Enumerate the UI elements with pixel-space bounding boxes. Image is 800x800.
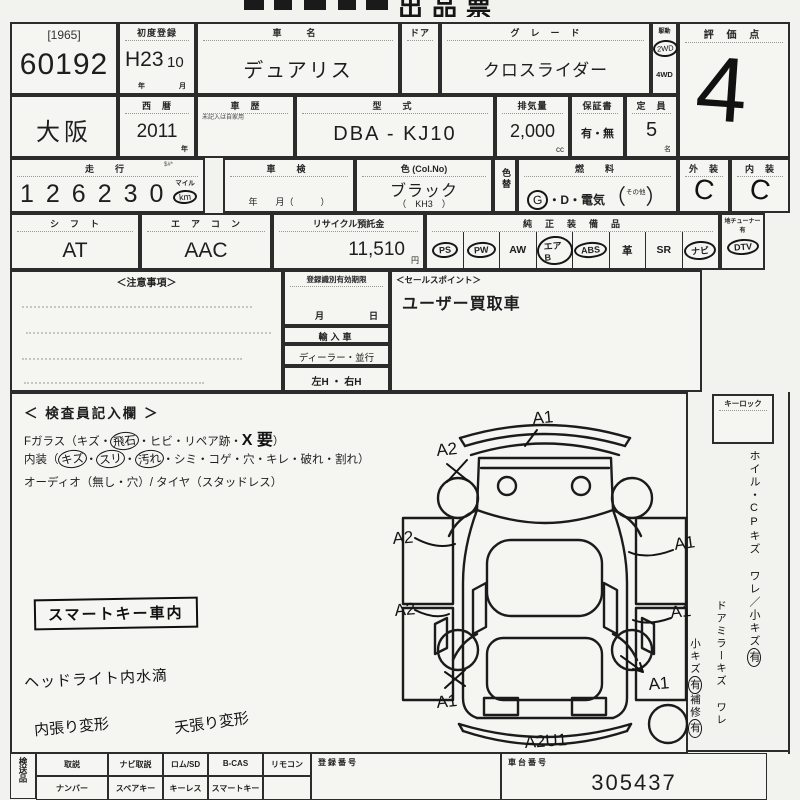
equipment-item-sr: SR xyxy=(645,232,682,268)
equipment-pw: PW xyxy=(466,241,496,259)
shift-box: シ フ ト AT xyxy=(10,213,140,270)
sales-point-label: ＜セールスポイント＞ xyxy=(396,274,481,286)
chassis-number-label: 車台番号 xyxy=(508,757,548,768)
expiry-month-label: 月 xyxy=(315,309,324,322)
first-registration-label: 初度登録 xyxy=(125,24,189,41)
smart-key-label: スマートキー xyxy=(209,783,262,794)
grade-box: グ レ ー ド クロスライダー xyxy=(440,22,651,95)
caution-notes-box: ＜注意事項＞ xyxy=(10,270,283,392)
grade-value: クロスライダー xyxy=(442,56,649,81)
glass-post: ） xyxy=(273,436,285,448)
registration-expiry-label: 登録識別有効期限 xyxy=(290,272,383,287)
mileage-value: 126230 xyxy=(20,180,175,209)
model-value: DBA - KJ10 xyxy=(297,123,493,146)
damage-label-rear: A2U1 xyxy=(524,730,568,752)
remote-label: リモコン xyxy=(264,759,310,770)
lot-year-tag: [1965] xyxy=(12,28,116,42)
equipment-item-pw: PW xyxy=(463,232,500,268)
registration-expiry-box: 登録識別有効期限 月 日 xyxy=(283,270,390,326)
headlight-moisture-note: ヘッドライト内水滴 xyxy=(24,664,169,693)
color-change-box: 色替 xyxy=(493,158,517,213)
west-year-box: 西 暦 2011 年 xyxy=(118,95,196,158)
equipment-label: 純 正 装 備 品 xyxy=(432,215,713,232)
interior-circled-dirt: 汚れ xyxy=(134,449,165,470)
west-year-value: 2011 xyxy=(120,121,194,143)
equipment-navi: ナビ xyxy=(684,239,717,260)
keyless-cell: キーレス xyxy=(163,776,208,800)
caution-label: ＜注意事項＞ xyxy=(12,274,281,289)
shaken-units: 年 月（ ） xyxy=(225,195,353,208)
faded-print-line xyxy=(26,332,271,334)
equipment-item-abs: ABS xyxy=(572,232,609,268)
interior-trim-deform-note: 内張り変形 xyxy=(33,713,110,740)
glass-circled-stone-chip: 飛石 xyxy=(109,431,140,452)
equipment-abs: ABS xyxy=(574,241,608,259)
first-registration-month: 10 xyxy=(167,54,184,71)
fuel-box: 燃 料 G・D・電気（その他） xyxy=(517,158,678,213)
capacity-unit: 名 xyxy=(664,144,671,154)
car-name-label: 車 名 xyxy=(203,24,393,41)
drive-label: 駆動 xyxy=(653,24,676,35)
drive-option-2wd: 2WD xyxy=(652,39,678,58)
model-label: 型 式 xyxy=(302,97,488,114)
exterior-value-handwritten: C xyxy=(678,171,730,209)
history-box: 車 歴 未記入は自家用 xyxy=(196,95,295,158)
damage-label-front-left: A2 xyxy=(435,439,458,460)
score-value-handwritten: 4 xyxy=(692,36,750,144)
mirror-memo-vertical: ドアミラーキズ ワレ xyxy=(714,600,729,750)
chassis-number-value: 305437 xyxy=(502,770,766,796)
fuel-options: ・D・電気 xyxy=(548,193,605,207)
interior-grade-box: 内 装 C xyxy=(730,158,790,213)
wheel-memo-circled-yes: 有 xyxy=(747,648,761,667)
right-strip-bottom-border xyxy=(688,750,790,752)
equipment-item-navi: ナビ xyxy=(682,232,719,268)
shift-value: AT xyxy=(12,239,138,263)
equipment-item-aw: AW xyxy=(499,232,536,268)
region-box: 大阪 xyxy=(10,95,118,158)
faded-print-line xyxy=(24,382,204,384)
damage-label-front: A1 xyxy=(532,407,554,428)
interior-circled-scuff: スリ xyxy=(95,449,126,470)
spare-key-label: スペアキー xyxy=(109,783,162,794)
damage-label-left-lower: A2 xyxy=(394,599,416,620)
tuner-dtv: DTV xyxy=(726,238,759,256)
capacity-label: 定 員 xyxy=(632,97,671,114)
grade-label: グ レ ー ド xyxy=(447,24,644,41)
first-registration-era: H23 xyxy=(125,48,164,72)
accessories-vertical-label-box: 検送品 xyxy=(10,753,36,799)
history-note: 未記入は自家用 xyxy=(202,112,244,121)
inspector-section: ＜ 検査員記入欄 ＞ Fガラス（キズ・飛石・ヒビ・リペア跡・X 要） 内装（キズ… xyxy=(10,392,688,754)
repair-text: 補修 xyxy=(689,694,701,719)
accessories-vertical-label: 検送品 xyxy=(17,757,29,783)
fuel-other-label: その他 xyxy=(626,189,646,196)
keylock-box: キーロック xyxy=(712,394,774,444)
equipment-item-ps: PS xyxy=(427,232,463,268)
interior-condition-line: 内装（キズ・スリ・汚れ・シミ・コゲ・穴・キレ・破れ・割れ） xyxy=(24,450,370,468)
glass-mid: ・ヒビ・リペア跡・ xyxy=(138,436,242,448)
chassis-number-box: 車台番号 305437 xyxy=(501,753,767,800)
faded-print-line xyxy=(22,358,242,360)
manual-cell: 取説 xyxy=(36,753,108,776)
equipment-box: 純 正 装 備 品 PS PW AW エアB ABS 革 SR ナビ xyxy=(425,213,720,270)
shaken-label: 車 検 xyxy=(230,160,348,177)
wheel-memo-vertical: ホイル・CPキズ ワレ／小キズ有 xyxy=(746,450,762,755)
fuel-label: 燃 料 xyxy=(524,160,671,177)
drive-option-4wd: 4WD xyxy=(653,70,676,79)
score-box: 評 価 点 4 xyxy=(678,22,790,158)
import-car-box: 輸入車 xyxy=(283,326,390,344)
car-damage-diagram: A1 A2 A2 A2 A1 A1 A1 A1 A2U1 xyxy=(387,398,702,755)
plate-cell: ナンバー xyxy=(36,776,108,800)
warranty-value: 有・無 xyxy=(572,125,623,141)
displacement-value: 2,000 xyxy=(497,121,568,142)
model-code-box: 型 式 DBA - KJ10 xyxy=(295,95,495,158)
auction-sheet: { "title": "出品票", "lot": {"year_tag": "[… xyxy=(0,0,800,800)
fuel-paren-close: ） xyxy=(646,186,667,209)
color-change-label: 色替 xyxy=(500,168,513,190)
color-label: 色 (Col.No) xyxy=(362,160,486,177)
capacity-value: 5 xyxy=(627,119,676,142)
interior-pre: 内装（ xyxy=(24,454,59,466)
recycle-value: 11,510 xyxy=(348,239,405,261)
region-value: 大阪 xyxy=(12,112,116,147)
repair-memo-vertical: 小キズ有補修有 xyxy=(688,638,703,753)
recycle-fee-box: リサイクル預託金 11,510 円 xyxy=(272,213,425,270)
lot-number-box: [1965] 60192 xyxy=(10,22,118,95)
exterior-grade-box: 外 装 C xyxy=(678,158,730,213)
import-car-label: 輸入車 xyxy=(285,330,388,343)
damage-label-left-upper: A2 xyxy=(392,528,414,548)
equipment-ps: PS xyxy=(431,241,458,259)
small-scratch-text: 小キズ xyxy=(689,638,701,676)
equipment-item-leather: 革 xyxy=(609,232,646,268)
color-box: 色 (Col.No) ブラック （ KH3 ） xyxy=(355,158,493,213)
damage-label-rear-left: A1 xyxy=(435,691,458,712)
audio-tire-line: オーディオ（無し・穴）/ タイヤ（スタッドレス） xyxy=(24,474,282,490)
aircon-label: エ ア コ ン xyxy=(147,215,265,232)
recycle-unit: 円 xyxy=(411,255,419,266)
first-registration-box: 初度登録 H23 10 年 月 xyxy=(118,22,196,95)
lot-number: 60192 xyxy=(12,48,116,82)
rom-sd-cell: ロム/SD xyxy=(163,753,208,776)
first-registration-unit-month: 月 xyxy=(179,81,186,91)
fuel-paren-open: （ xyxy=(605,186,626,209)
sales-point-value: ユーザー買取車 xyxy=(402,290,521,314)
car-name-box: 車 名 デュアリス xyxy=(196,22,400,95)
interior-dot2: ・ xyxy=(124,454,136,466)
bcas-cell: B-CAS xyxy=(208,753,263,776)
equipment-sr: SR xyxy=(656,244,671,256)
glass-pre: Fガラス（キズ・ xyxy=(24,436,111,448)
aircon-value: AAC xyxy=(142,239,270,263)
mileage-side-mark: $#* xyxy=(164,162,173,168)
dealer-parallel-box: ディーラー・並行 xyxy=(283,344,390,366)
plate-label: ナンバー xyxy=(37,783,107,794)
handle-position-box: 左H ・ 右H xyxy=(283,366,390,392)
glass-condition-line: Fガラス（キズ・飛石・ヒビ・リペア跡・X 要） xyxy=(24,426,284,450)
handle-position-label: 左H ・ 右H xyxy=(285,373,388,388)
manual-label: 取説 xyxy=(37,759,107,770)
recycle-label: リサイクル預託金 xyxy=(279,215,418,232)
inspector-title: ＜ 検査員記入欄 ＞ xyxy=(24,402,160,422)
sales-point-box: ＜セールスポイント＞ ユーザー買取車 xyxy=(390,270,702,392)
interior-post: ・シミ・コゲ・穴・キレ・破れ・割れ） xyxy=(163,454,370,466)
west-year-label: 西 暦 xyxy=(125,97,189,114)
displacement-unit: cc xyxy=(556,145,564,154)
displacement-box: 排気量 2,000 cc xyxy=(495,95,570,158)
west-year-unit: 年 xyxy=(181,144,188,154)
drive-type-box: 駆動 2WD 4WD xyxy=(651,22,678,95)
warranty-box: 保証書 有・無 xyxy=(570,95,625,158)
mileage-unit-km: km xyxy=(173,189,198,205)
interior-circled-scratch: キズ xyxy=(57,449,88,470)
glass-handwritten-mark: X 要 xyxy=(242,432,273,449)
bcas-label: B-CAS xyxy=(209,759,262,768)
sheet-title-strip: 出品票 xyxy=(240,0,590,17)
remote-cell: リモコン xyxy=(263,753,311,776)
navi-manual-label: ナビ取説 xyxy=(109,759,162,770)
repair-circled-yes: 有 xyxy=(688,719,702,738)
empty-cell xyxy=(263,776,311,800)
equipment-item-airbag: エアB xyxy=(536,232,573,268)
tuner-box: 地チューナー有 DTV xyxy=(720,213,765,270)
sheet-title: 出品票 xyxy=(398,0,500,17)
registration-number-label: 登録番号 xyxy=(318,757,358,768)
registration-number-box: 登録番号 xyxy=(311,753,501,800)
shift-label: シ フ ト xyxy=(17,215,133,232)
displacement-label: 排気量 xyxy=(502,97,563,114)
smart-key-cell: スマートキー xyxy=(208,776,263,800)
smart-key-stamp: スマートキー車内 xyxy=(34,597,198,631)
equipment-cells: PS PW AW エアB ABS 革 SR ナビ xyxy=(427,232,718,268)
expiry-day-label: 日 xyxy=(369,309,378,322)
small-scratch-circled-yes: 有 xyxy=(688,676,702,695)
warranty-label: 保証書 xyxy=(577,97,618,114)
ceiling-trim-deform-note: 天張り変形 xyxy=(173,707,250,738)
faded-print-line xyxy=(22,306,252,308)
navi-manual-cell: ナビ取説 xyxy=(108,753,163,776)
mileage-box: 走 行 $#* 126230 マイル km xyxy=(10,158,205,213)
shaken-box: 車 検 年 月（ ） xyxy=(223,158,355,213)
equipment-airbag: エアB xyxy=(536,234,573,265)
damage-label-right-upper: A1 xyxy=(673,532,696,554)
first-registration-unit-year: 年 xyxy=(138,81,145,91)
sheet-right-border xyxy=(788,392,790,754)
damage-label-right-lower: A1 xyxy=(648,673,670,694)
damage-label-right-mid: A1 xyxy=(669,601,692,622)
door-box: ドア xyxy=(400,22,440,95)
fuel-option-g: G xyxy=(526,189,549,210)
keylock-label: キーロック xyxy=(719,396,767,411)
color-code: （ KH3 ） xyxy=(357,197,491,210)
dealer-parallel-label: ディーラー・並行 xyxy=(285,350,388,364)
wheel-memo-text: ホイル・CPキズ ワレ／小キズ xyxy=(748,450,760,648)
capacity-box: 定 員 5 名 xyxy=(625,95,678,158)
equipment-aw: AW xyxy=(509,244,526,256)
tuner-label: 地チューナー有 xyxy=(722,215,763,234)
aircon-box: エ ア コ ン AAC xyxy=(140,213,272,270)
spare-key-cell: スペアキー xyxy=(108,776,163,800)
car-name-value: デュアリス xyxy=(198,54,398,83)
rom-sd-label: ロム/SD xyxy=(164,759,207,770)
door-label: ドア xyxy=(407,24,433,41)
mileage-unit-mile: マイル xyxy=(170,177,200,187)
equipment-leather: 革 xyxy=(622,243,633,258)
keyless-label: キーレス xyxy=(164,783,207,794)
